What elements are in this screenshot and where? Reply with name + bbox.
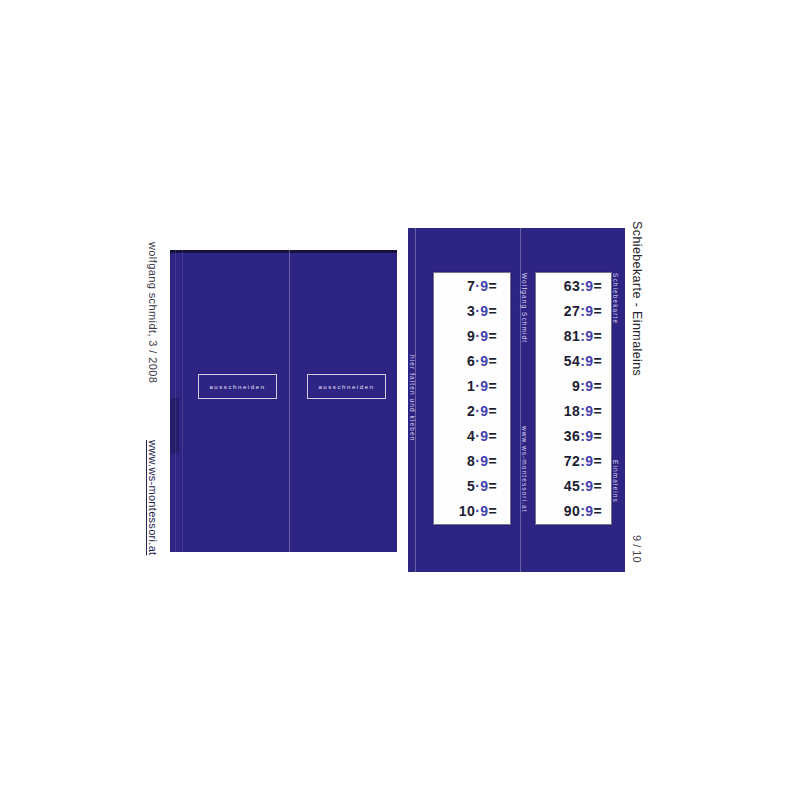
operator-operand: :9 — [580, 404, 593, 418]
equation-row: 7·9= — [434, 279, 510, 293]
equals-sign: = — [593, 429, 602, 443]
factor-value: 72 — [564, 454, 580, 468]
factor-value: 1 — [467, 379, 475, 393]
factor-value: 8 — [467, 454, 475, 468]
factor-value: 18 — [564, 404, 580, 418]
cutout-label: ausschneiden — [209, 384, 265, 390]
equals-sign: = — [488, 429, 497, 443]
operator-operand: ·9 — [475, 504, 488, 518]
factor-value: 5 — [467, 479, 475, 493]
factor-value: 10 — [459, 504, 475, 518]
operator-operand: ·9 — [475, 454, 488, 468]
equation-row: 18:9= — [536, 404, 611, 418]
equals-sign: = — [488, 329, 497, 343]
operator-operand: :9 — [580, 354, 593, 368]
factor-value: 81 — [564, 329, 580, 343]
factor-value: 9 — [572, 379, 580, 393]
left-card-panel: ausschneiden ausschneiden — [170, 250, 397, 552]
card-title-label: Schiebekarte — [612, 273, 619, 324]
equation-row: 4·9= — [434, 429, 510, 443]
right-card-panel: hier falten und kleben Wolfgang Schmidt … — [408, 228, 625, 572]
card-author-text: Wolfgang Schmidt — [521, 273, 528, 343]
margin-url-link: www.ws-montessori.at — [147, 440, 159, 555]
equation-row: 27:9= — [536, 304, 611, 318]
center-fold-line — [289, 250, 290, 552]
factor-value: 90 — [564, 504, 580, 518]
scanned-worksheet-page: wolfgang schmidt, 3 / 2008 www.ws-montes… — [0, 0, 800, 800]
equals-sign: = — [488, 279, 497, 293]
operator-operand: ·9 — [475, 354, 488, 368]
equals-sign: = — [593, 479, 602, 493]
operator-operand: ·9 — [475, 304, 488, 318]
cutout-label: ausschneiden — [318, 384, 374, 390]
equals-sign: = — [488, 479, 497, 493]
equals-sign: = — [593, 304, 602, 318]
operator-operand: :9 — [580, 504, 593, 518]
operator-operand: ·9 — [475, 379, 488, 393]
fold-line — [182, 250, 183, 552]
operator-operand: :9 — [580, 304, 593, 318]
cutout-window-right: ausschneiden — [307, 374, 386, 399]
operator-operand: ·9 — [475, 279, 488, 293]
factor-value: 3 — [467, 304, 475, 318]
operator-operand: ·9 — [475, 429, 488, 443]
factor-value: 54 — [564, 354, 580, 368]
equation-row: 2·9= — [434, 404, 510, 418]
factor-value: 36 — [564, 429, 580, 443]
equation-row: 45:9= — [536, 479, 611, 493]
margin-sheet-title: Schiebekarte - Einmaleins — [630, 221, 644, 376]
equation-row: 63:9= — [536, 279, 611, 293]
operator-operand: :9 — [580, 329, 593, 343]
equation-row: 3·9= — [434, 304, 510, 318]
equals-sign: = — [488, 354, 497, 368]
factor-value: 63 — [564, 279, 580, 293]
factor-value: 45 — [564, 479, 580, 493]
operator-operand: ·9 — [475, 329, 488, 343]
equation-row: 72:9= — [536, 454, 611, 468]
operator-operand: :9 — [580, 429, 593, 443]
factor-value: 6 — [467, 354, 475, 368]
equals-sign: = — [593, 279, 602, 293]
equals-sign: = — [488, 454, 497, 468]
equals-sign: = — [593, 404, 602, 418]
equation-row: 9:9= — [536, 379, 611, 393]
fold-hint-text: hier falten und kleben — [409, 355, 416, 441]
equals-sign: = — [488, 304, 497, 318]
equation-row: 9·9= — [434, 329, 510, 343]
factor-value: 7 — [467, 279, 475, 293]
margin-author-text: wolfgang schmidt, 3 / 2008 — [147, 242, 159, 383]
equation-row: 10·9= — [434, 504, 510, 518]
card-url-text: www.ws-montessori.at — [521, 426, 528, 513]
equation-row: 5·9= — [434, 479, 510, 493]
equals-sign: = — [593, 354, 602, 368]
operator-operand: :9 — [580, 279, 593, 293]
equation-row: 8·9= — [434, 454, 510, 468]
equals-sign: = — [488, 379, 497, 393]
equals-sign: = — [593, 329, 602, 343]
operator-operand: ·9 — [475, 479, 488, 493]
equals-sign: = — [593, 379, 602, 393]
equals-sign: = — [593, 454, 602, 468]
equation-row: 1·9= — [434, 379, 510, 393]
equation-row: 6·9= — [434, 354, 510, 368]
equation-row: 36:9= — [536, 429, 611, 443]
factor-value: 4 — [467, 429, 475, 443]
margin-page-number: 9 / 10 — [631, 535, 643, 563]
factor-value: 9 — [467, 329, 475, 343]
equals-sign: = — [593, 504, 602, 518]
operator-operand: :9 — [580, 379, 593, 393]
operator-operand: :9 — [580, 479, 593, 493]
multiplication-strip: 7·9=3·9=9·9=6·9=1·9=2·9=4·9=8·9=5·9=10·9… — [433, 272, 511, 525]
card-subject-label: Einmaleins — [612, 460, 619, 503]
factor-value: 2 — [467, 404, 475, 418]
operator-operand: :9 — [580, 454, 593, 468]
cutout-window-left: ausschneiden — [198, 374, 277, 399]
division-strip: 63:9=27:9=81:9=54:9=9:9=18:9=36:9=72:9=4… — [535, 272, 612, 525]
equation-row: 90:9= — [536, 504, 611, 518]
equals-sign: = — [488, 504, 497, 518]
factor-value: 27 — [564, 304, 580, 318]
slider-tab-shadow — [170, 398, 179, 453]
operator-operand: ·9 — [475, 404, 488, 418]
equation-row: 81:9= — [536, 329, 611, 343]
scan-edge-artifact — [170, 250, 397, 253]
equals-sign: = — [488, 404, 497, 418]
equation-row: 54:9= — [536, 354, 611, 368]
